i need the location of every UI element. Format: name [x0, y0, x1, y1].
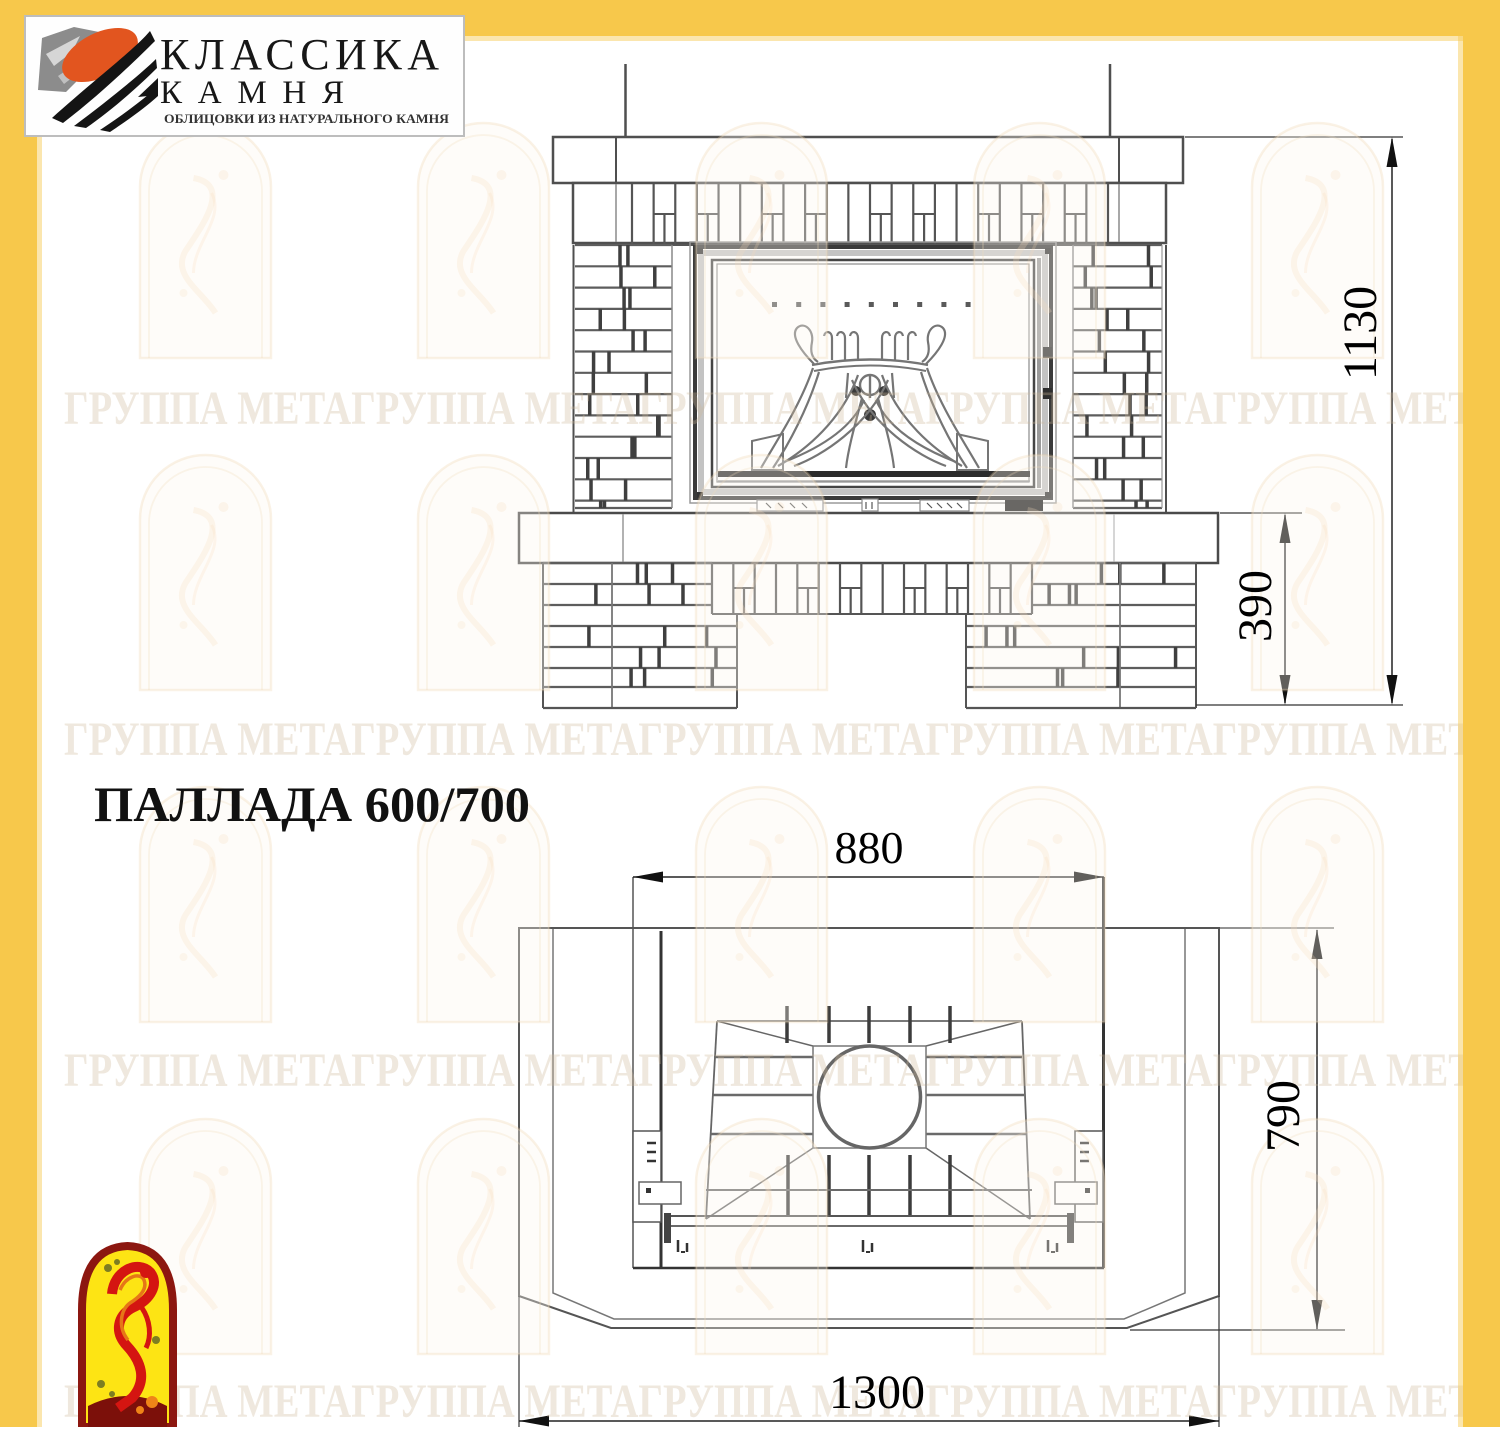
- svg-text:ГРУППА МЕТАГРУППА МЕТАГРУППА М: ГРУППА МЕТАГРУППА МЕТАГРУППА МЕТАГРУППА …: [64, 382, 1500, 435]
- svg-text:ПАЛЛАДА 600/700: ПАЛЛАДА 600/700: [94, 776, 530, 832]
- svg-text:1130: 1130: [1334, 286, 1387, 380]
- svg-text:ГРУППА МЕТАГРУППА МЕТАГРУППА М: ГРУППА МЕТАГРУППА МЕТАГРУППА МЕТАГРУППА …: [64, 1375, 1500, 1427]
- svg-text:790: 790: [1257, 1080, 1310, 1152]
- svg-text:ГРУППА МЕТАГРУППА МЕТАГРУППА М: ГРУППА МЕТАГРУППА МЕТАГРУППА МЕТАГРУППА …: [64, 713, 1500, 766]
- svg-text:1300: 1300: [829, 1366, 925, 1419]
- svg-text:КЛАССИКА: КЛАССИКА: [160, 30, 439, 79]
- svg-text:390: 390: [1229, 570, 1282, 642]
- svg-text:880: 880: [835, 822, 904, 873]
- svg-text:ОБЛИЦОВКИ ИЗ НАТУРАЛЬНОГО КАМН: ОБЛИЦОВКИ ИЗ НАТУРАЛЬНОГО КАМНЯ: [164, 111, 450, 126]
